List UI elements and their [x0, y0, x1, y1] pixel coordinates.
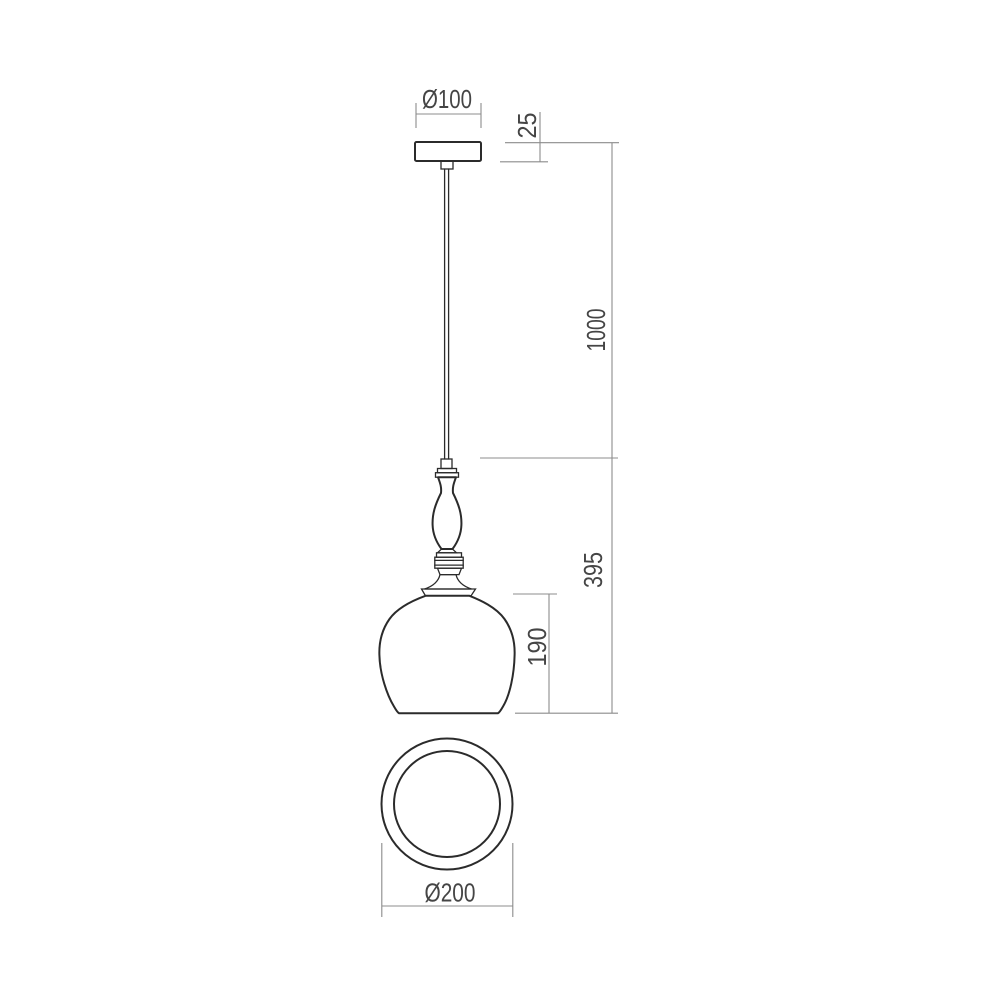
bottom-view-inner-circle: [394, 751, 500, 857]
neck-taper: [438, 568, 462, 574]
dim-label-canopy-diameter: Ø100: [422, 84, 472, 114]
trumpet-flare: [425, 575, 472, 589]
bell-shade-outline: [379, 596, 514, 713]
shade-rim-band: [422, 589, 476, 596]
dim-label-canopy-height: 25: [512, 113, 542, 139]
dim-canopy-height: 25: [500, 112, 619, 162]
dim-fixture-height: 395: [578, 458, 612, 713]
side-view: [379, 142, 514, 713]
dim-label-cable-length: 1000: [581, 309, 611, 352]
technical-drawing-canvas: Ø100 25 1000 395 190: [0, 0, 1000, 1000]
dim-cable-length: 1000: [480, 143, 618, 458]
ring-band-upper: [437, 553, 462, 557]
dim-label-shade-diameter: Ø200: [425, 878, 476, 908]
canopy-stem: [441, 161, 453, 169]
pendant-lamp-diagram: Ø100 25 1000 395 190: [0, 0, 1000, 1000]
bottom-view: [382, 739, 513, 870]
dim-shade-height: 190: [513, 594, 618, 713]
cord-grip: [441, 459, 452, 469]
bottom-view-outer-circle: [382, 739, 513, 870]
dim-canopy-diameter: Ø100: [416, 84, 481, 128]
dim-label-fixture-height: 395: [578, 552, 608, 588]
ceiling-canopy-outline: [415, 142, 481, 161]
dim-shade-diameter: Ø200: [382, 843, 513, 917]
ring-band-main: [435, 557, 463, 568]
dim-label-shade-height: 190: [522, 628, 552, 667]
baluster-body: [433, 477, 462, 549]
